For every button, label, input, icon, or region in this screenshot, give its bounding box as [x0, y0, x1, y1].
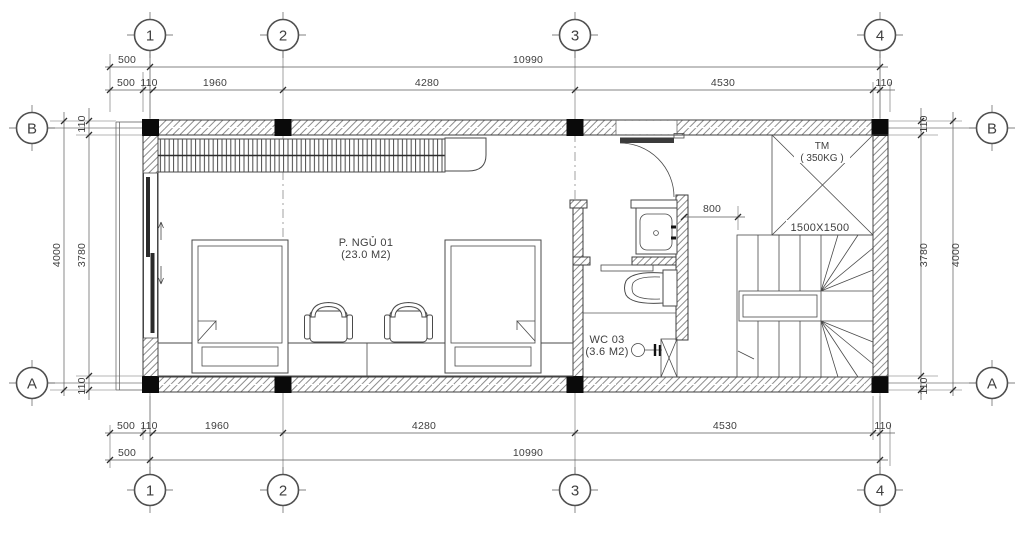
wardrobe-end-panel — [445, 138, 486, 171]
dim-right-110-top: 110 — [918, 115, 930, 132]
chair1-arm-right — [347, 315, 353, 339]
floor-plan-sheet: TM ( 350KG ) 1500X1500 P. NGỦ 01 (23.0 M… — [0, 0, 1024, 533]
floor-plan: TM ( 350KG ) 1500X1500 P. NGỦ 01 (23.0 M… — [116, 119, 889, 393]
chair-1 — [305, 303, 353, 343]
column-2A — [275, 376, 292, 393]
stair-well-outer — [739, 291, 821, 321]
dimension-wc-clearance: 800 — [681, 203, 745, 230]
bubble-rowB-left: B — [9, 105, 55, 151]
door-opening — [616, 121, 677, 135]
stair-well-inner — [743, 295, 817, 317]
door-swing-arc — [620, 143, 674, 197]
dim-bot-500-overall: 500 — [118, 447, 136, 459]
elevator: TM ( 350KG ) 1500X1500 — [772, 135, 873, 235]
elevator-capacity: ( 350KG ) — [800, 153, 843, 164]
elevator-size: 1500X1500 — [791, 222, 850, 234]
dim-800: 800 — [703, 203, 721, 215]
stair-winders-upper — [821, 235, 873, 291]
window-slide-arrow-down — [159, 266, 164, 284]
column-4A — [872, 376, 889, 393]
dim-top-500-overall: 500 — [118, 54, 136, 66]
wc-area: (3.6 M2) — [585, 346, 628, 358]
wall-sink-stub — [632, 257, 676, 265]
dim-left-110-bottom: 110 — [76, 377, 88, 394]
bubble-rowA-right: A — [969, 360, 1015, 406]
svg-text:A: A — [987, 376, 997, 393]
sink-counter — [631, 200, 677, 208]
dim-bot-10990: 10990 — [513, 447, 543, 459]
wall-wc-left — [573, 208, 583, 377]
bubble-col2-top: 2 — [260, 12, 306, 58]
dim-top-110-right: 110 — [875, 77, 892, 89]
svg-text:1: 1 — [146, 28, 154, 45]
bedroom-area: (23.0 M2) — [341, 249, 391, 261]
wc-sliding-shelf — [601, 265, 653, 271]
stair-winders-lower — [821, 321, 873, 377]
bedroom-name: P. NGỦ 01 — [339, 236, 393, 249]
dim-top-4530: 4530 — [711, 77, 735, 89]
stair-entry-cut — [738, 351, 754, 359]
stair-treads-upper — [758, 235, 821, 291]
door-leaf — [620, 138, 674, 144]
floor-plan-drawing: TM ( 350KG ) 1500X1500 P. NGỦ 01 (23.0 M… — [0, 0, 1024, 533]
dim-top-1960: 1960 — [203, 77, 227, 89]
wall-wc-left-cap — [570, 200, 587, 208]
stair-outline — [737, 235, 873, 377]
chair-2 — [385, 303, 433, 343]
sliding-window — [144, 173, 164, 338]
sink — [631, 200, 677, 254]
svg-text:B: B — [987, 121, 997, 138]
toilet-tank — [663, 270, 677, 306]
chair1-arm-left — [305, 315, 311, 339]
dim-left-4000: 4000 — [51, 243, 63, 267]
wc-name: WC 03 — [589, 334, 624, 346]
dim-bot-4530: 4530 — [713, 420, 737, 432]
stair-treads-lower — [758, 321, 821, 377]
svg-text:2: 2 — [279, 483, 287, 500]
wall-right — [873, 135, 888, 377]
valve-circle — [632, 344, 645, 357]
svg-text:B: B — [27, 121, 37, 138]
chair2-arm-right — [427, 315, 433, 339]
dimensions-bottom: 500 110 1960 4280 4530 110 500 10990 — [105, 396, 895, 468]
bubble-rowA-left: A — [9, 360, 55, 406]
dim-bot-110-left: 110 — [140, 420, 157, 432]
dim-left-3780: 3780 — [76, 243, 88, 267]
dimensions-left: 4000 3780 110 110 — [50, 108, 143, 400]
window-panel-lower — [151, 253, 155, 333]
staircase — [737, 235, 873, 377]
svg-text:A: A — [27, 376, 37, 393]
duct-cross — [661, 339, 677, 377]
wall-wc-stub-left — [573, 257, 590, 265]
wardrobe — [158, 138, 486, 172]
bottom-extension-lines — [110, 396, 890, 468]
bed-2 — [445, 240, 541, 373]
window-panel-upper — [146, 177, 150, 257]
dim-bot-1960: 1960 — [205, 420, 229, 432]
floor-drain-valve — [632, 344, 663, 357]
dim-bot-4280: 4280 — [412, 420, 436, 432]
bed2-frame — [445, 240, 541, 373]
column-3B — [567, 119, 584, 136]
bubble-col1-top: 1 — [127, 12, 173, 58]
window-slide-arrow-up — [159, 222, 164, 240]
svg-text:4: 4 — [876, 28, 884, 45]
dim-right-110-bottom: 110 — [918, 377, 930, 394]
column-1B — [142, 119, 159, 136]
dim-left-110-top: 110 — [76, 115, 88, 132]
dimensions-top: 500 10990 500 110 1960 4280 4530 110 — [105, 54, 895, 118]
bubble-col3-bottom: 3 — [552, 467, 598, 513]
svg-text:3: 3 — [571, 483, 579, 500]
dim-top-500: 500 — [117, 77, 135, 89]
bubble-col1-bottom: 1 — [127, 467, 173, 513]
column-4B — [872, 119, 889, 136]
svg-text:4: 4 — [876, 483, 884, 500]
dim-bot-110-right: 110 — [874, 420, 891, 432]
balcony-edge — [116, 122, 143, 390]
bottom-dim-ticks — [107, 430, 883, 463]
dim-top-110-left: 110 — [140, 77, 157, 89]
bubble-col4-bottom: 4 — [857, 467, 903, 513]
duct-shaft — [661, 339, 677, 377]
column-2B — [275, 119, 292, 136]
column-3A — [567, 376, 584, 393]
dim-right-4000: 4000 — [950, 243, 962, 267]
wc-door — [616, 121, 684, 197]
svg-text:3: 3 — [571, 28, 579, 45]
bubble-col4-top: 4 — [857, 12, 903, 58]
dim-right-3780: 3780 — [918, 243, 930, 267]
column-1A — [142, 376, 159, 393]
toilet — [625, 270, 678, 306]
elevator-name: TM — [815, 141, 829, 152]
bubble-col2-bottom: 2 — [260, 467, 306, 513]
dim-top-10990: 10990 — [513, 54, 543, 66]
bed1-frame — [192, 240, 288, 373]
bed-1 — [192, 240, 288, 373]
dim-top-4280: 4280 — [415, 77, 439, 89]
chair2-arm-left — [385, 315, 391, 339]
bubble-rowB-right: B — [969, 105, 1015, 151]
dim-bot-500: 500 — [117, 420, 135, 432]
svg-text:1: 1 — [146, 483, 154, 500]
svg-text:2: 2 — [279, 28, 287, 45]
bubble-col3-top: 3 — [552, 12, 598, 58]
